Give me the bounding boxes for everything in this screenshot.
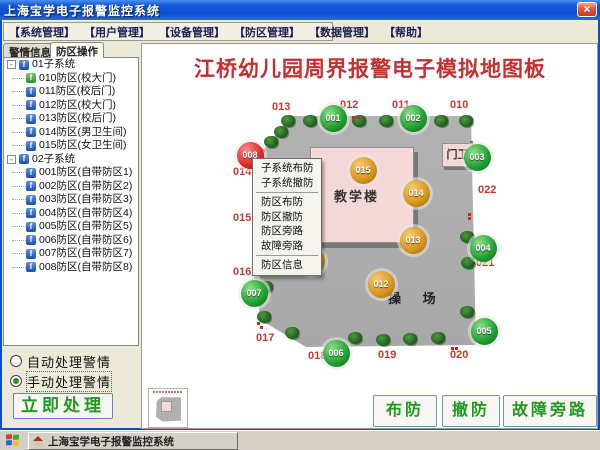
menu-separator — [256, 192, 318, 193]
tab-alarm-info[interactable]: 警情信息 — [3, 43, 57, 58]
zone-status-icon: f — [26, 114, 36, 124]
subsystem-icon: f — [19, 154, 29, 164]
sensor-dot-icon — [352, 116, 355, 119]
context-menu-item-4[interactable]: 防区撤防 — [253, 210, 321, 225]
tree-zone-item[interactable]: f015防区(女卫生间) — [4, 139, 138, 153]
tree-item-label: 005防区(自带防区5) — [39, 220, 132, 234]
tree-connector — [12, 118, 26, 119]
context-menu-item-5[interactable]: 防区旁路 — [253, 224, 321, 239]
tree-connector — [12, 91, 26, 92]
zone-status-icon: f — [26, 141, 36, 151]
tree-item-label: 012防区(校大门) — [39, 99, 116, 113]
tree-icon — [403, 333, 417, 345]
zone-marker-007[interactable]: 007 — [241, 280, 268, 307]
perimeter-zone-label-017: 017 — [256, 332, 274, 344]
tree-item-label: 02子系统 — [32, 153, 75, 167]
tree-zone-item[interactable]: f010防区(校大门) — [4, 72, 138, 86]
tree-connector — [12, 240, 26, 241]
map-thumbnail[interactable] — [148, 388, 188, 428]
sensor-dot-icon — [357, 116, 360, 119]
flag-blue — [6, 440, 12, 445]
tree-icon — [431, 332, 445, 344]
sensor-dot-icon — [257, 322, 260, 325]
sensor-dot-icon — [470, 141, 473, 144]
tree-zone-item[interactable]: f011防区(校后门) — [4, 85, 138, 99]
sensor-dot-icon — [468, 213, 471, 216]
tree-connector — [12, 186, 26, 187]
zone-status-icon: f — [26, 87, 36, 97]
zone-marker-002[interactable]: 002 — [400, 105, 427, 132]
context-menu: 子系统布防子系统撤防防区布防防区撤防防区旁路故障旁路防区信息 — [252, 158, 322, 276]
tree-connector — [12, 172, 26, 173]
taskbar-app-button[interactable]: 上海宝学电子报警监控系统 — [28, 432, 238, 450]
start-button[interactable] — [6, 434, 20, 448]
zone-marker-015[interactable]: 015 — [350, 157, 377, 184]
tree-connector — [12, 132, 26, 133]
tree-item-label: 01子系统 — [32, 58, 75, 72]
map-title: 江桥幼儿园周界报警电子模拟地图板 — [150, 53, 590, 83]
perimeter-zone-label-020: 020 — [450, 349, 468, 361]
tree-zone-item[interactable]: f004防区(自带防区4) — [4, 207, 138, 221]
context-menu-item-0[interactable]: 子系统布防 — [253, 161, 321, 176]
menu-bar: 【系统管理】【用户管理】【设备管理】【防区管理】【数据管理】【帮助】 — [3, 22, 333, 41]
tree-item-label: 014防区(男卫生间) — [39, 126, 127, 140]
process-now-button[interactable]: 立即处理 — [13, 393, 113, 419]
zone-status-icon: f — [26, 208, 36, 218]
radio-circle-selected-icon[interactable] — [10, 375, 22, 387]
disarm-button[interactable]: 撤防 — [442, 395, 500, 427]
tree-subsystem[interactable]: -f02子系统 — [4, 153, 138, 167]
perimeter-zone-label-015: 015 — [233, 212, 251, 224]
tree-item-label: 001防区(自带防区1) — [39, 166, 132, 180]
perimeter-zone-label-019: 019 — [378, 349, 396, 361]
context-menu-item-1[interactable]: 子系统撤防 — [253, 176, 321, 191]
flag-yellow — [13, 441, 19, 446]
tree-icon — [264, 136, 278, 148]
flag-red — [6, 434, 12, 439]
arm-button[interactable]: 布防 — [373, 395, 437, 427]
zone-marker-013[interactable]: 013 — [400, 227, 427, 254]
zone-status-icon: f — [26, 100, 36, 110]
radio-label: 自动处理警情 — [27, 352, 111, 371]
tree-zone-item[interactable]: f007防区(自带防区7) — [4, 247, 138, 261]
radio-circle-icon[interactable] — [10, 355, 22, 367]
tree-subsystem[interactable]: -f01子系统 — [4, 58, 138, 72]
radio-auto-process[interactable]: 自动处理警情 — [10, 353, 111, 369]
sensor-dot-icon — [260, 326, 263, 329]
tree-zone-item[interactable]: f014防区(男卫生间) — [4, 126, 138, 140]
perimeter-zone-label-016: 016 — [233, 266, 251, 278]
zone-marker-004[interactable]: 004 — [470, 235, 497, 262]
playground-label: 操 场 — [388, 288, 445, 307]
menu-item-4[interactable]: 【数据管理】 — [309, 24, 375, 40]
tree-zone-item[interactable]: f006防区(自带防区6) — [4, 234, 138, 248]
zone-status-icon: f — [26, 168, 36, 178]
zone-marker-001[interactable]: 001 — [320, 105, 347, 132]
tree-connector — [12, 105, 26, 106]
zone-status-icon: f — [26, 262, 36, 272]
thumbnail-building — [161, 401, 172, 412]
tree-item-label: 003防区(自带防区3) — [39, 193, 132, 207]
flag-green — [13, 435, 19, 440]
zone-status-icon: f — [26, 235, 36, 245]
tree-icon — [461, 257, 475, 269]
expander-icon[interactable]: - — [7, 60, 16, 69]
tree-connector — [12, 226, 26, 227]
tab-zone-operation[interactable]: 防区操作 — [50, 42, 104, 58]
tree-zone-item[interactable]: f005防区(自带防区5) — [4, 220, 138, 234]
zone-marker-005[interactable]: 005 — [471, 318, 498, 345]
tree-icon — [434, 115, 448, 127]
app-house-icon — [33, 436, 44, 446]
tree-item-label: 011防区(校后门) — [39, 85, 115, 99]
zone-status-icon: f — [26, 127, 36, 137]
context-menu-item-3[interactable]: 防区布防 — [253, 195, 321, 210]
sensor-dot-icon — [468, 217, 471, 220]
subsystem-icon: f — [19, 60, 29, 70]
zone-marker-012[interactable]: 012 — [368, 271, 395, 298]
tree-item-label: 002防区(自带防区2) — [39, 180, 132, 194]
zone-marker-014[interactable]: 014 — [403, 180, 430, 207]
tree-connector — [12, 199, 26, 200]
tree-item-label: 015防区(女卫生间) — [39, 139, 127, 153]
menu-item-0[interactable]: 【系统管理】 — [9, 24, 75, 40]
tree-icon — [460, 306, 474, 318]
zone-status-icon: f — [26, 249, 36, 259]
tree-zone-item[interactable]: f013防区(校后门) — [4, 112, 138, 126]
tree-connector — [12, 145, 26, 146]
radio-manual-process[interactable]: 手动处理警情 — [10, 373, 111, 389]
window-title: 上海宝学电子报警监控系统 — [4, 2, 160, 19]
teaching-building-label: 教学楼 — [334, 186, 379, 205]
tree-item-label: 004防区(自带防区4) — [39, 207, 132, 221]
radio-label: 手动处理警情 — [27, 372, 111, 391]
tree-icon — [459, 115, 473, 127]
tree-connector — [12, 253, 26, 254]
tree-zone-item[interactable]: f012防区(校大门) — [4, 99, 138, 113]
tree-item-label: 010防区(校大门) — [39, 72, 116, 86]
tree-zone-item[interactable]: f008防区(自带防区8) — [4, 261, 138, 275]
thumbnail-title-line — [153, 391, 183, 393]
tree-item-label: 013防区(校后门) — [39, 112, 116, 126]
perimeter-zone-label-013: 013 — [272, 101, 290, 113]
fault-bypass-button[interactable]: 故障旁路 — [503, 395, 597, 427]
tree-connector — [12, 78, 26, 79]
context-menu-item-6[interactable]: 故障旁路 — [253, 239, 321, 254]
tree-zone-item[interactable]: f001防区(自带防区1) — [4, 166, 138, 180]
expander-icon[interactable]: - — [7, 155, 16, 164]
tree-icon — [348, 332, 362, 344]
menu-item-3[interactable]: 【防区管理】 — [234, 24, 300, 40]
tree-item-label: 006防区(自带防区6) — [39, 234, 132, 248]
zone-status-icon: f — [26, 195, 36, 205]
zone-status-icon: f — [26, 222, 36, 232]
tree-zone-item[interactable]: f003防区(自带防区3) — [4, 193, 138, 207]
context-menu-item-8[interactable]: 防区信息 — [253, 258, 321, 273]
tree-connector — [12, 213, 26, 214]
tree-icon — [376, 334, 390, 346]
zone-marker-003[interactable]: 003 — [464, 144, 491, 171]
window-titlebar[interactable]: 上海宝学电子报警监控系统 — [0, 0, 600, 20]
taskbar: 上海宝学电子报警监控系统 21:30 — [0, 430, 600, 450]
tree-zone-item[interactable]: f002防区(自带防区2) — [4, 180, 138, 194]
zone-marker-006[interactable]: 006 — [323, 340, 350, 367]
tree-item-label: 008防区(自带防区8) — [39, 261, 132, 275]
menu-separator — [256, 255, 318, 256]
tree-connector — [12, 267, 26, 268]
menu-item-1[interactable]: 【用户管理】 — [84, 24, 150, 40]
zone-tree: -f01子系统f010防区(校大门)f011防区(校后门)f012防区(校大门)… — [3, 57, 139, 346]
zone-status-icon: f — [26, 181, 36, 191]
desktop: 上海宝学电子报警监控系统 × 【系统管理】【用户管理】【设备管理】【防区管理】【… — [0, 0, 600, 450]
perimeter-zone-label-022: 022 — [478, 184, 496, 196]
tree-icon — [285, 327, 299, 339]
tree-icon — [379, 115, 393, 127]
menu-item-2[interactable]: 【设备管理】 — [159, 24, 225, 40]
taskbar-app-label: 上海宝学电子报警监控系统 — [48, 434, 174, 449]
menu-item-5[interactable]: 【帮助】 — [384, 24, 428, 40]
zone-status-icon: f — [26, 73, 36, 83]
close-button[interactable]: × — [577, 2, 597, 17]
perimeter-zone-label-010: 010 — [450, 99, 468, 111]
tree-icon — [303, 115, 317, 127]
tree-item-label: 007防区(自带防区7) — [39, 247, 132, 261]
